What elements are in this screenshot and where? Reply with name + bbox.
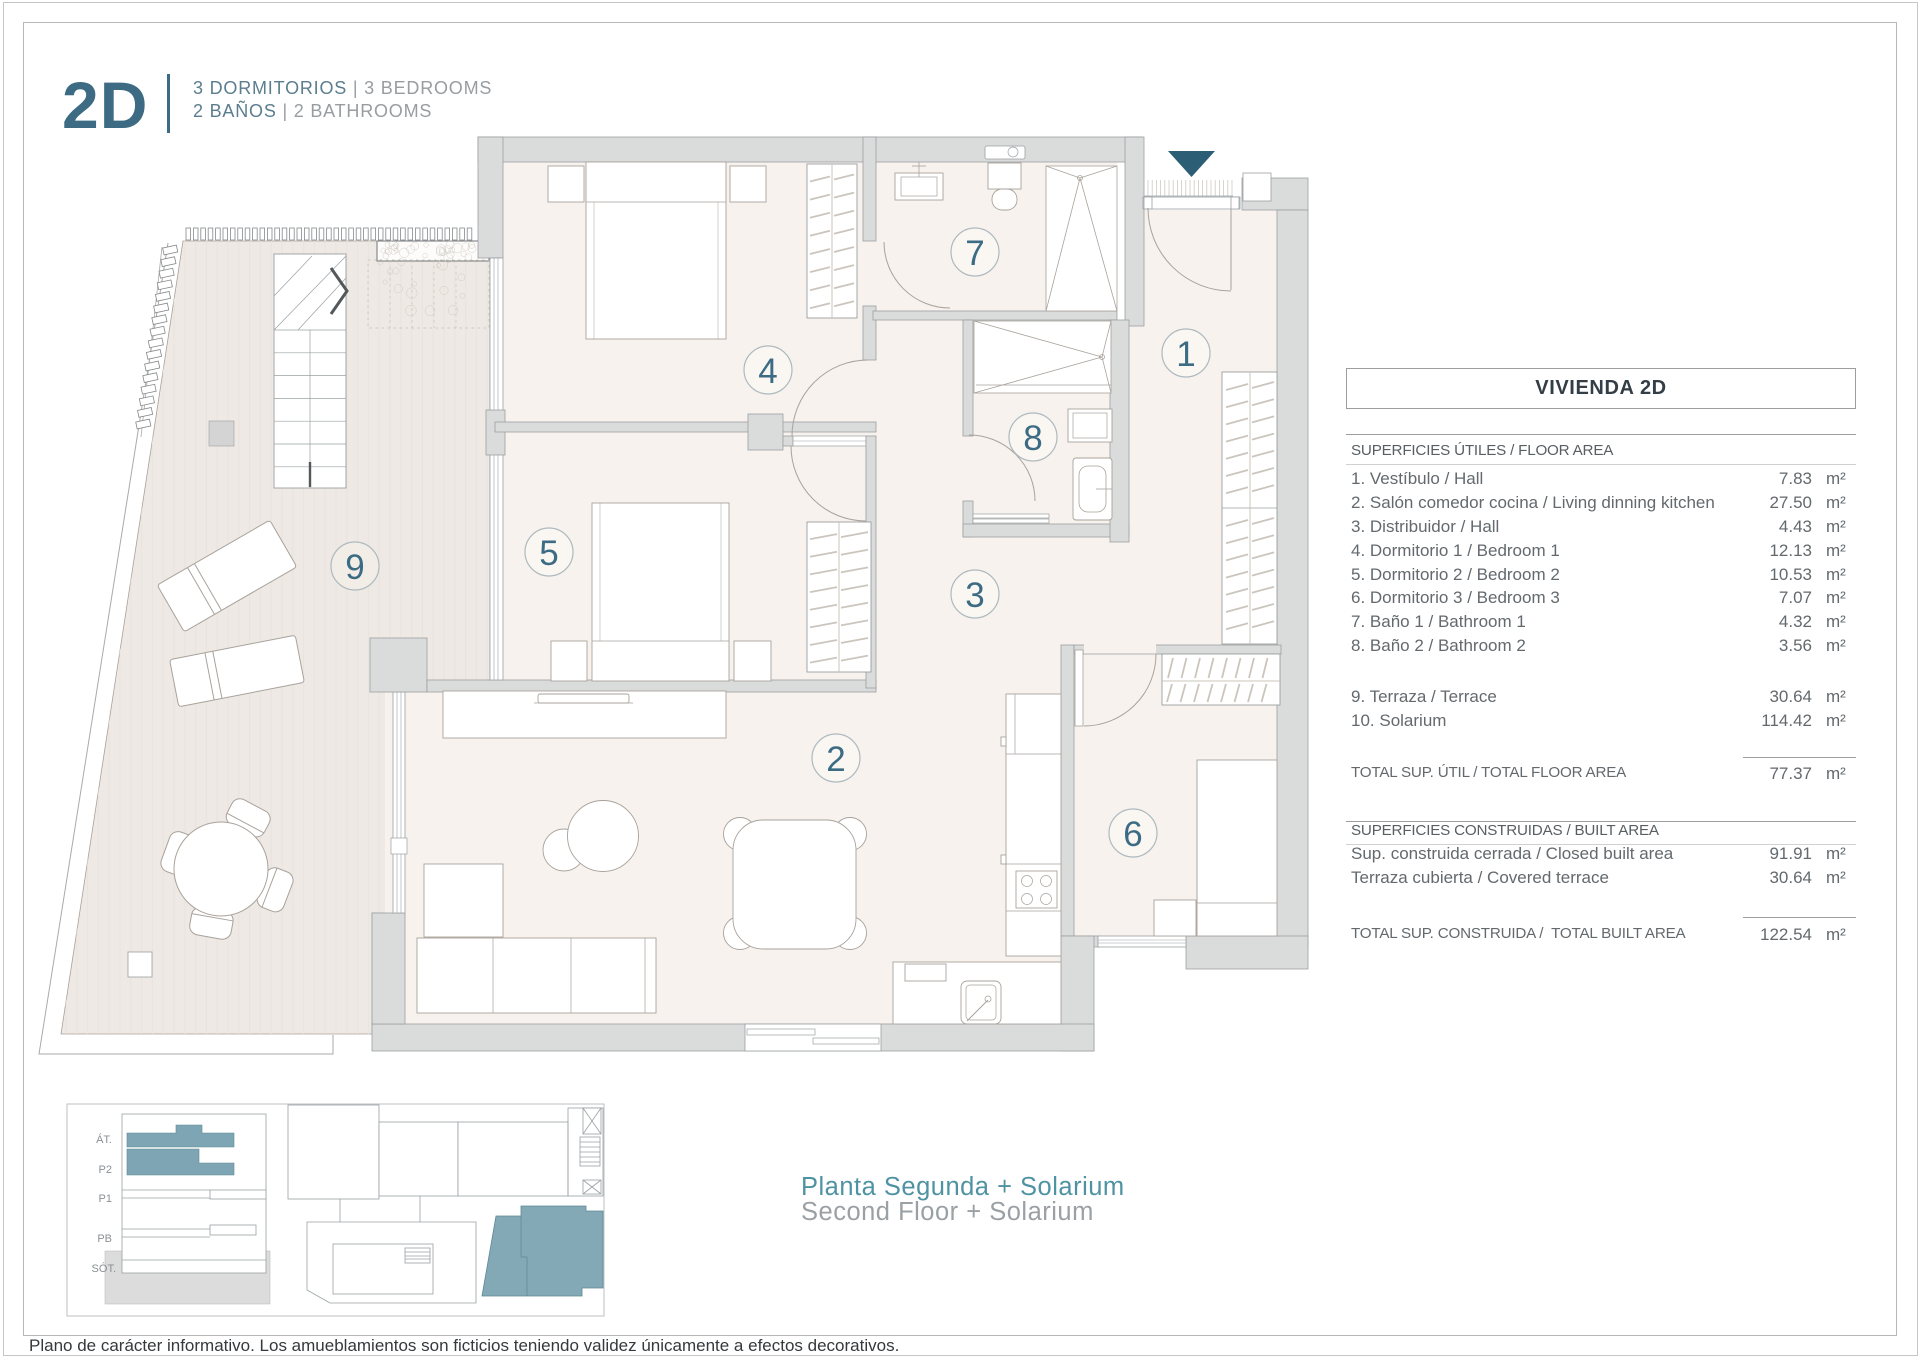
svg-text:P1: P1	[99, 1193, 112, 1205]
svg-text:6: 6	[1123, 815, 1142, 854]
svg-text:7: 7	[965, 234, 984, 273]
svg-text:P2: P2	[99, 1164, 112, 1176]
svg-text:8: 8	[1023, 419, 1042, 458]
svg-text:PB: PB	[97, 1233, 112, 1245]
svg-text:2: 2	[826, 740, 845, 779]
svg-text:SÓT.: SÓT.	[92, 1262, 116, 1275]
svg-text:5: 5	[539, 534, 558, 573]
svg-text:1: 1	[1176, 335, 1195, 374]
svg-text:9: 9	[345, 548, 364, 587]
svg-text:3: 3	[965, 576, 984, 615]
svg-text:ÁT.: ÁT.	[96, 1133, 112, 1146]
svg-text:4: 4	[758, 352, 777, 391]
